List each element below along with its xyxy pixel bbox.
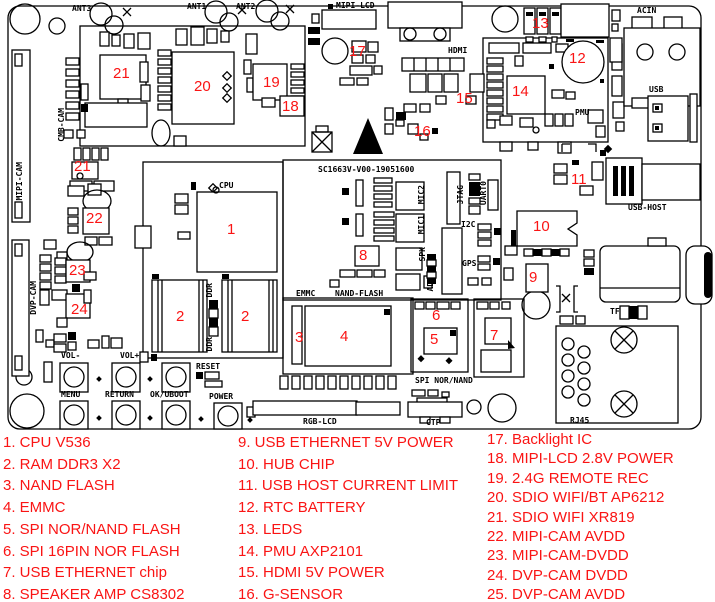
- mipi-lcd-connector: [322, 10, 376, 29]
- silkscreen-label: RETURN: [105, 391, 134, 399]
- silkscreen-label: SC1663V-V00-19051600: [318, 166, 414, 174]
- rj45-connector: [556, 316, 678, 423]
- component-marker: 21: [74, 159, 91, 174]
- component-marker: 22: [86, 211, 103, 226]
- legend-item: 7. USB ETHERNET chip: [3, 562, 185, 584]
- silkscreen-label: SPK: [419, 247, 427, 261]
- usb-connector: [648, 94, 697, 142]
- legend-item: 6. SPI 16PIN NOR FLASH: [3, 541, 185, 563]
- rgb-lcd-connector: [253, 401, 357, 415]
- silkscreen-label: DDR: [206, 337, 214, 351]
- silkscreen-label: USB-HOST: [628, 204, 667, 212]
- power-connector: [561, 4, 609, 37]
- legend-item: 10. HUB CHIP: [238, 454, 458, 476]
- silkscreen-label: RJ45: [570, 417, 589, 425]
- legend-column-3: 17. Backlight IC18. MIPI-LCD 2.8V POWER1…: [487, 430, 674, 602]
- silkscreen-label: TF: [610, 308, 620, 316]
- component-marker: 13: [532, 16, 549, 31]
- component-marker: 4: [340, 329, 348, 344]
- component-marker: 11: [571, 172, 587, 187]
- ctp-connector: [408, 402, 462, 417]
- silkscreen-label: CMB-CAM: [58, 108, 66, 142]
- legend-item: 4. EMMC: [3, 497, 185, 519]
- silkscreen-label: JTAG: [457, 185, 465, 204]
- component-marker: 14: [512, 84, 529, 99]
- legend-item: 1. CPU V536: [3, 432, 185, 454]
- legend-item: 11. USB HOST CURRENT LIMIT: [238, 475, 458, 497]
- hdmi-connector: [388, 2, 462, 28]
- legend-item: 17. Backlight IC: [487, 430, 674, 449]
- silkscreen-label: RESET: [196, 363, 220, 371]
- silkscreen-label: ACIN: [637, 7, 656, 15]
- component-marker: 7: [490, 328, 498, 343]
- pcb-component-diagram: ANT3ANT1ANT2MIPI-LCDACINHDMIUSBPMUUSB-HO…: [0, 0, 715, 602]
- legend-item: 22. MIPI-CAM AVDD: [487, 527, 674, 546]
- legend-item: 16. G-SENSOR: [238, 584, 458, 602]
- legend-item: 23. MIPI-CAM-DVDD: [487, 546, 674, 565]
- component-marker: 2: [176, 309, 184, 324]
- silkscreen-label: CPU: [219, 182, 233, 190]
- legend-item: 21. SDIO WIFI XR819: [487, 508, 674, 527]
- legend-item: 24. DVP-CAM DVDD: [487, 566, 674, 585]
- silkscreen-label: VOL+: [120, 352, 139, 360]
- component-marker: 19: [263, 75, 280, 90]
- silkscreen-label: MIC1: [418, 215, 426, 234]
- silkscreen-label: PMU: [575, 109, 589, 117]
- legend-item: 19. 2.4G REMOTE REC: [487, 469, 674, 488]
- component-marker: 15: [456, 91, 473, 106]
- silkscreen-label: MENU: [61, 391, 80, 399]
- component-marker: 17: [349, 44, 366, 59]
- legend-item: 20. SDIO WIFI/BT AP6212: [487, 488, 674, 507]
- component-marker: 9: [529, 270, 537, 285]
- tf-slot: [600, 246, 680, 302]
- silkscreen-label: SPI NOR/NAND: [415, 377, 473, 385]
- silkscreen-label: UART0: [480, 181, 488, 205]
- legend-item: 12. RTC BATTERY: [238, 497, 458, 519]
- silkscreen-label: ANT2: [236, 3, 255, 11]
- component-marker: 23: [69, 263, 86, 278]
- component-marker: 1: [227, 222, 235, 237]
- component-marker: 16: [414, 124, 431, 139]
- silkscreen-label: NAND-FLASH: [335, 290, 383, 298]
- component-marker: 24: [71, 302, 88, 317]
- legend-item: 18. MIPI-LCD 2.8V POWER: [487, 449, 674, 468]
- component-marker: 18: [282, 99, 299, 114]
- silkscreen-label: GPS: [462, 260, 476, 268]
- component-marker: 21: [113, 66, 130, 81]
- legend-item: 3. NAND FLASH: [3, 475, 185, 497]
- silkscreen-label: MIC2: [418, 185, 426, 204]
- component-marker: 10: [533, 219, 550, 234]
- component-marker: 20: [194, 79, 211, 94]
- legend-item: 14. PMU AXP2101: [238, 541, 458, 563]
- component-marker: 5: [430, 332, 438, 347]
- legend-item: 15. HDMI 5V POWER: [238, 562, 458, 584]
- component-marker: 2: [241, 309, 249, 324]
- silkscreen-label: DDR: [206, 283, 214, 297]
- acin-connector: [610, 17, 700, 108]
- legend-item: 2. RAM DDR3 X2: [3, 454, 185, 476]
- legend-item: 25. DVP-CAM AVDD: [487, 585, 674, 602]
- silkscreen-label: POWER: [209, 393, 233, 401]
- silkscreen-label: CTP: [426, 419, 440, 427]
- cpu-chip: [197, 192, 277, 272]
- silkscreen-label: VOL-: [61, 352, 80, 360]
- silkscreen-label: ANT3: [72, 5, 91, 13]
- legend-item: 8. SPEAKER AMP CS8302: [3, 584, 185, 602]
- component-marker: 3: [295, 330, 303, 345]
- legend-item: 13. LEDS: [238, 519, 458, 541]
- legend-column-2: 9. USB ETHERNET 5V POWER10. HUB CHIP11. …: [238, 432, 458, 602]
- silkscreen-label: MIPI-CAM: [16, 162, 24, 201]
- component-marker: 6: [432, 308, 440, 323]
- silkscreen-label: ANT1: [187, 3, 206, 11]
- silkscreen-label: DVP-CAM: [30, 281, 38, 315]
- silkscreen-label: ADC: [427, 277, 435, 291]
- silkscreen-label: EMMC: [296, 290, 315, 298]
- silkscreen-label: HDMI: [448, 47, 467, 55]
- legend-column-1: 1. CPU V5362. RAM DDR3 X23. NAND FLASH4.…: [3, 432, 185, 602]
- silkscreen-label: MIPI-LCD: [336, 2, 375, 10]
- silkscreen-label: USB: [649, 86, 663, 94]
- component-marker: 12: [569, 51, 586, 66]
- silkscreen-label: OK/UBOOT: [150, 391, 189, 399]
- legend-item: 9. USB ETHERNET 5V POWER: [238, 432, 458, 454]
- silkscreen-label: I2C: [461, 221, 475, 229]
- legend-item: 5. SPI NOR/NAND FLASH: [3, 519, 185, 541]
- pcb-artwork: [0, 0, 715, 432]
- component-marker: 8: [359, 248, 367, 263]
- silkscreen-label: RGB-LCD: [303, 418, 337, 426]
